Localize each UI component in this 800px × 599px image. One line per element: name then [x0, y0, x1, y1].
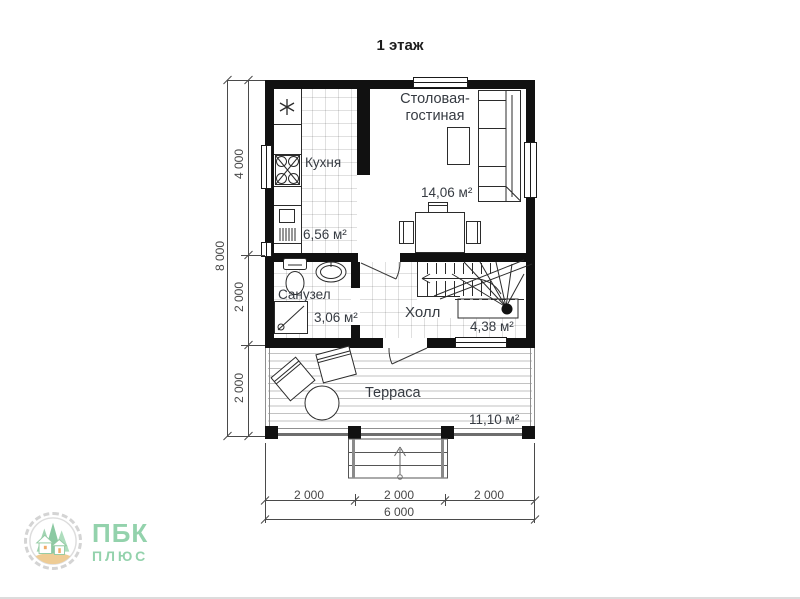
room-area-living: 14,06 м²: [421, 185, 472, 200]
shower-icon: [275, 302, 308, 334]
room-area-hall: 4,38 м²: [470, 319, 514, 334]
dining-table: [400, 203, 481, 253]
entry-steps: [349, 439, 448, 479]
room-label-bathroom: Санузел: [278, 287, 331, 302]
dim-left-segment-3: 2 000: [232, 360, 246, 416]
logo-title: ПБК: [92, 520, 148, 546]
dim-left-segment-2: 2 000: [232, 269, 246, 325]
room-area-terrace: 11,10 м²: [469, 412, 519, 427]
bath-sink-icon: [316, 262, 346, 282]
coffee-table: [448, 128, 470, 165]
dim-bottom-segment-2: 2 000: [371, 488, 427, 502]
terrace-round-table: [305, 386, 339, 420]
dim-bottom-total: 6 000: [371, 505, 427, 519]
logo-gear-icon: [24, 512, 82, 570]
dim-bottom-segment-3: 2 000: [461, 488, 517, 502]
room-label-living-line2: гостиная: [385, 108, 485, 125]
room-area-bathroom: 3,06 м²: [314, 310, 358, 325]
logo: ПБК ПЛЮС: [24, 512, 148, 570]
logo-text: ПБК ПЛЮС: [92, 520, 148, 563]
room-label-living: Столовая- гостиная: [385, 91, 485, 125]
dim-bottom-segment-1: 2 000: [281, 488, 337, 502]
dim-left-segment-1: 4 000: [232, 136, 246, 192]
logo-scene: [28, 516, 78, 566]
room-label-kitchen: Кухня: [305, 155, 341, 170]
room-label-living-line1: Столовая-: [385, 91, 485, 108]
logo-subtitle: ПЛЮС: [92, 549, 148, 563]
room-area-kitchen: 6,56 м²: [303, 227, 347, 242]
floor-plan-page: 1 этаж: [0, 0, 800, 599]
door-hall-dining: [361, 262, 400, 279]
room-label-hall: Холл: [405, 304, 440, 321]
dim-left-total: 8 000: [213, 228, 227, 284]
room-label-terrace: Терраса: [365, 385, 421, 401]
door-hall-terrace: [389, 348, 427, 364]
terrace-armchair: [316, 346, 356, 383]
